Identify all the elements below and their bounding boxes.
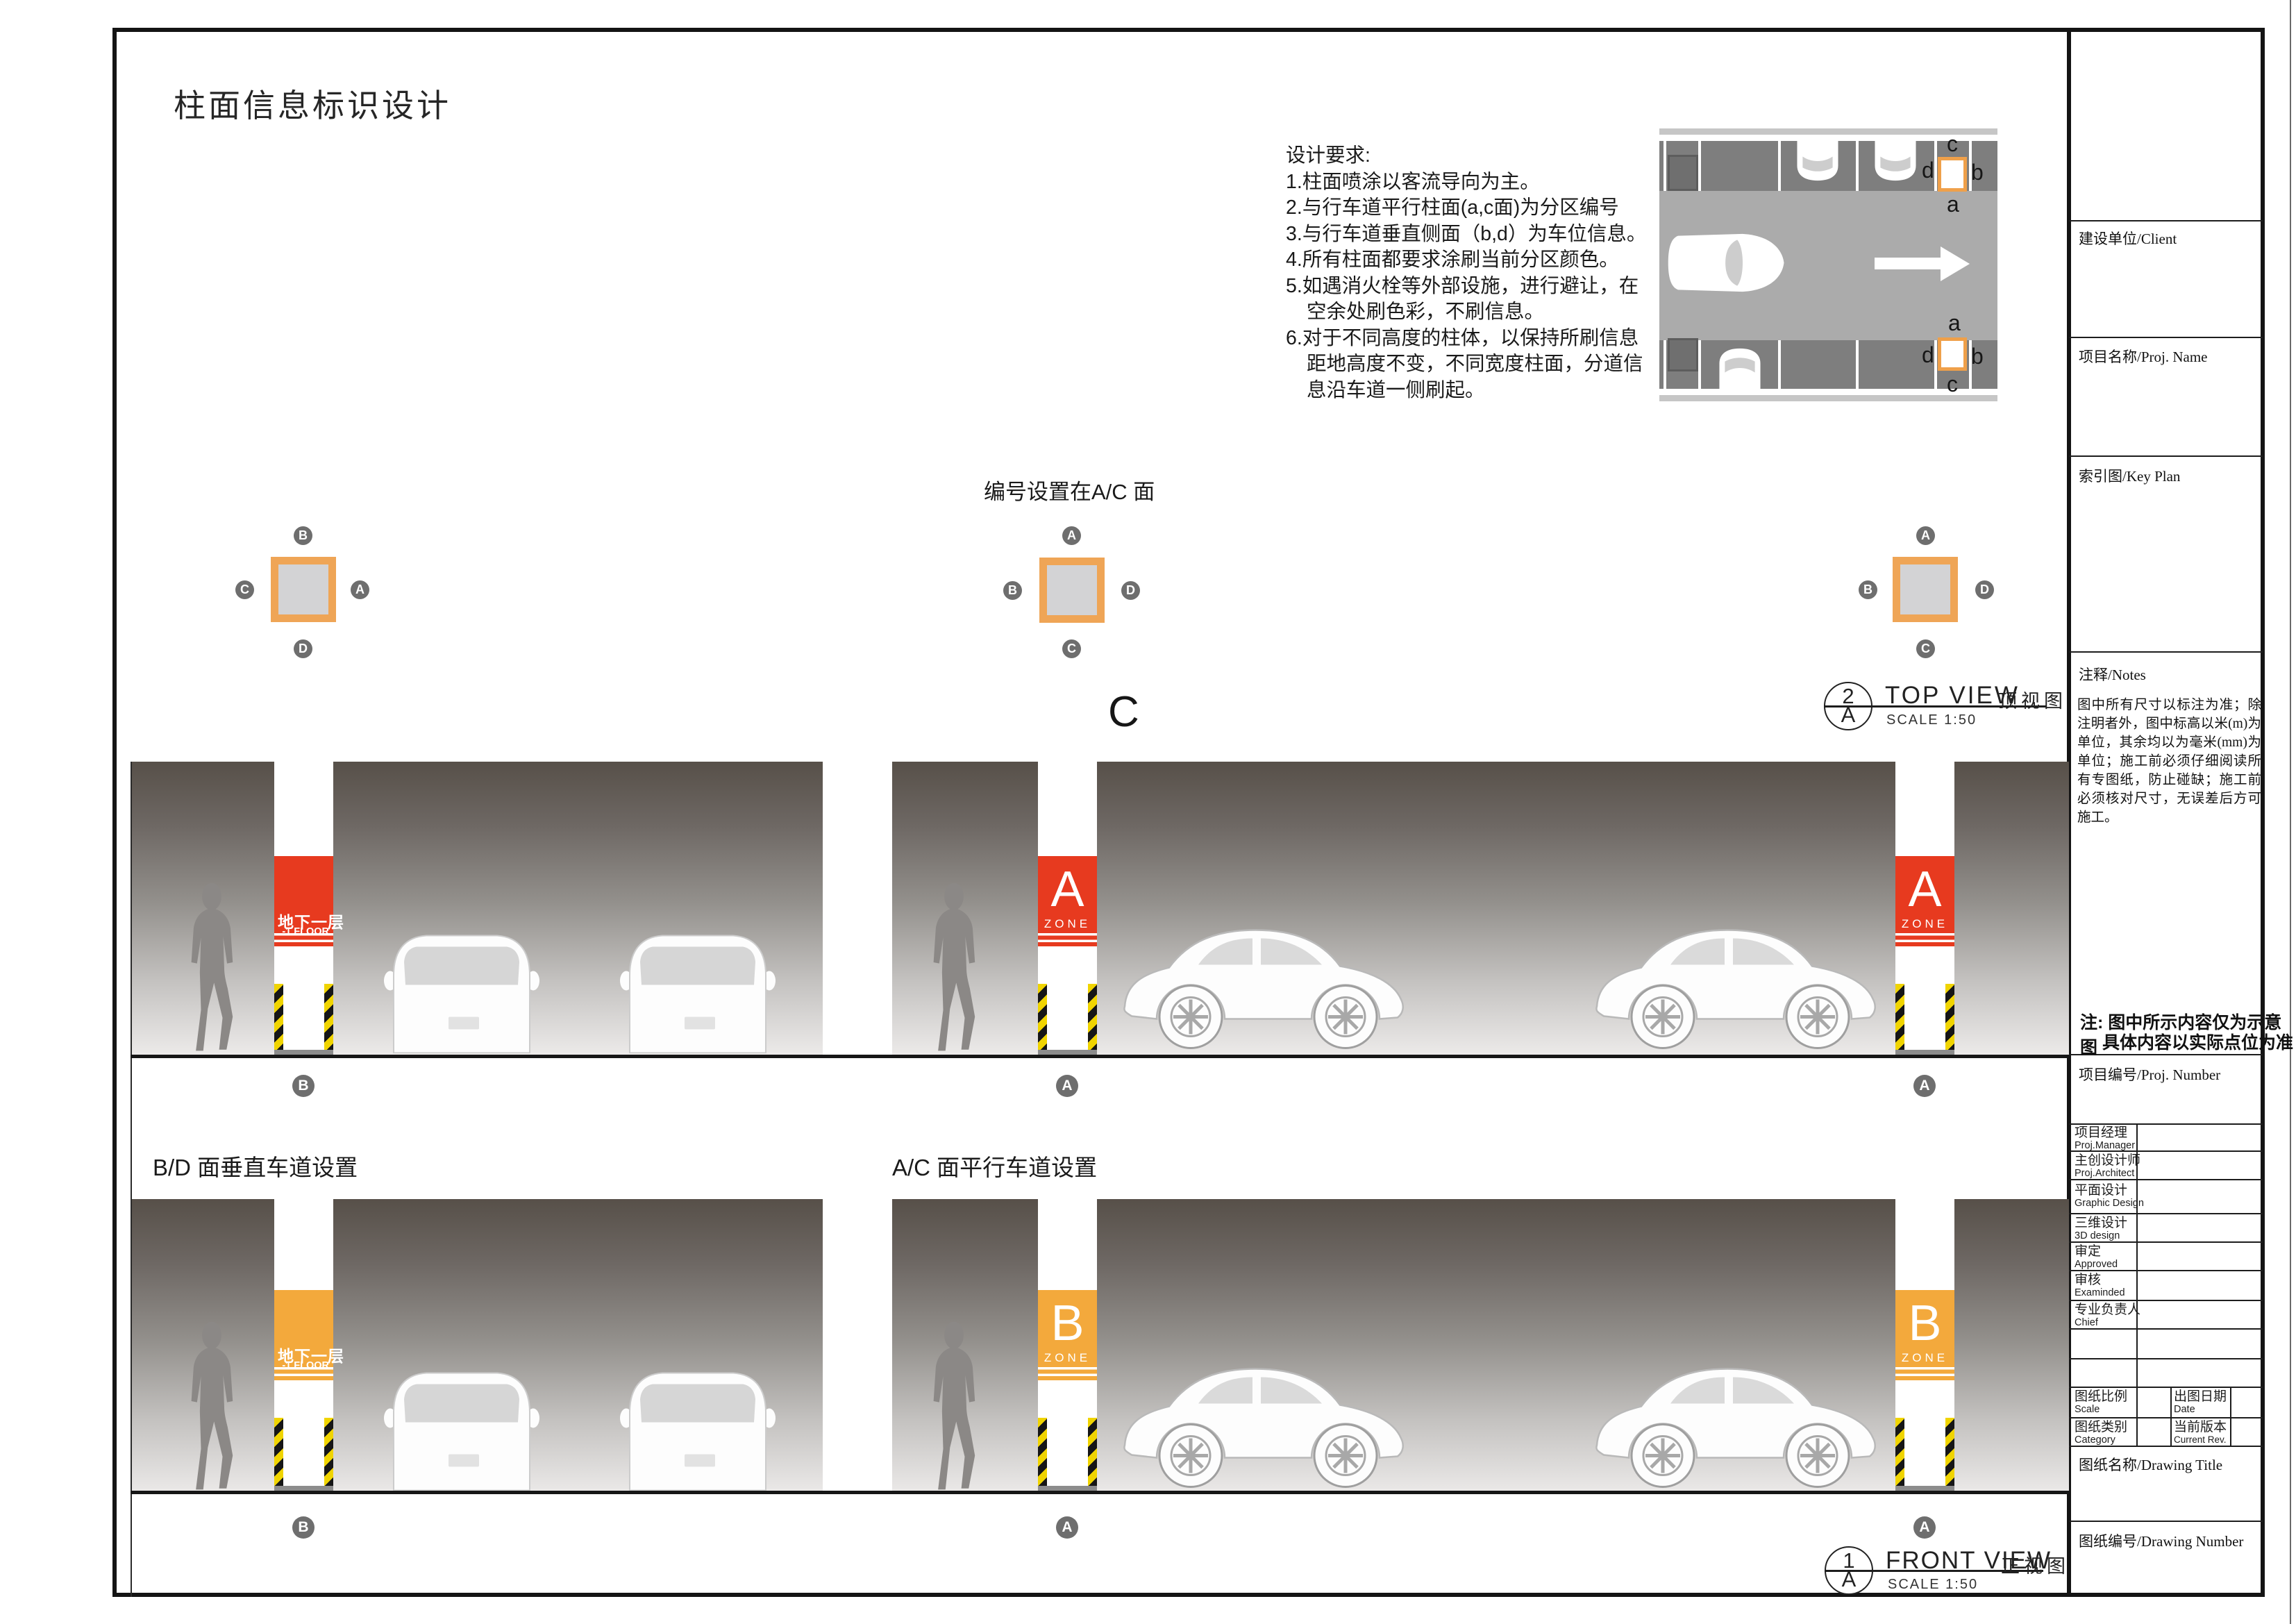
stall-line [1778, 141, 1781, 191]
parked-car-side-icon [1590, 1334, 1888, 1491]
face-badge: B [1003, 581, 1022, 600]
face-letter: a [1948, 312, 1961, 334]
role-cn: 审核 [2075, 1273, 2125, 1287]
design-requirements-title: 设计要求: [1286, 143, 1646, 169]
person-silhouette-icon [920, 1321, 988, 1491]
face-badge: B [292, 1075, 315, 1097]
design-requirement-line: 6.对于不同高度的柱体，以保持所刷信息 [1286, 326, 1646, 352]
face-badge: C [235, 580, 254, 599]
hazard-stripe [274, 984, 283, 1050]
face-badge: A [351, 580, 369, 599]
column: B ZONE [1895, 1199, 1954, 1494]
stall-line [1664, 340, 1666, 389]
category-en: Category [2075, 1434, 2127, 1446]
sign-stripes [1038, 933, 1097, 948]
face-badge: C [1062, 639, 1081, 658]
key-plan-label: 索引图/Key Plan [2079, 465, 2180, 486]
zone-letter: B [1038, 1298, 1097, 1348]
role-en: Approved [2075, 1259, 2118, 1270]
role-label: 平面设计 Graphic Design [2075, 1183, 2144, 1209]
date-en: Date [2174, 1404, 2227, 1415]
hazard-stripe [1945, 984, 1954, 1050]
face-letter: d [1922, 344, 1934, 366]
column-base [1038, 1486, 1097, 1491]
direction-arrow [1875, 258, 1941, 269]
role-cn: 三维设计 [2075, 1216, 2127, 1230]
drawing-sheet: 柱面信息标识设计 设计要求: 1.柱面喷涂以客流导向为主。 2.与行车道平行柱面… [0, 0, 2296, 1624]
table-divider [2170, 1387, 2172, 1446]
sign-stripes [274, 933, 333, 948]
stall-line [1856, 141, 1859, 191]
proj-name-label: 项目名称/Proj. Name [2079, 346, 2207, 367]
sidebar-divider [2069, 455, 2263, 457]
role-en: 3D design [2075, 1230, 2127, 1241]
stall-line [1698, 340, 1701, 389]
viewport-scale: SCALE 1:50 [1886, 712, 1977, 728]
parked-car-rear-icon [618, 1343, 778, 1491]
face-letter: c [1947, 133, 1958, 155]
face-badge: A [1916, 526, 1935, 545]
hazard-stripe [324, 984, 333, 1050]
zone-sign-a: A ZONE [1038, 856, 1097, 948]
scale-en: Scale [2075, 1404, 2127, 1415]
hazard-stripe [1038, 984, 1047, 1050]
face-letter: c [1947, 373, 1958, 395]
sidebar-divider [2069, 1417, 2263, 1418]
hazard-stripe [324, 1418, 333, 1486]
design-requirement-line: 距地高度不变，不同宽度柱面，分道信 [1286, 351, 1646, 378]
ac-elevation-label: A/C 面平行车道设置 [892, 1149, 1097, 1182]
parked-car-rear-icon [382, 905, 542, 1053]
column: 地下一层 -1 FLOOR [274, 762, 333, 1055]
bd-elevation-label: B/D 面垂直车道设置 [153, 1149, 358, 1182]
face-badge: B [294, 526, 312, 545]
numbering-heading: 编号设置在A/C 面 [984, 474, 1155, 505]
plan-column-highlight [1938, 337, 1967, 371]
column-section [1039, 558, 1105, 623]
column-base [274, 1050, 333, 1055]
hazard-stripe [1945, 1418, 1954, 1486]
design-requirements: 设计要求: 1.柱面喷涂以客流导向为主。 2.与行车道平行柱面(a,c面)为分区… [1286, 143, 1646, 403]
sidebar-divider [2069, 1213, 2263, 1214]
stall-line [1934, 340, 1937, 389]
zone-word: ZONE [1038, 917, 1097, 931]
parked-car-side-icon [1118, 896, 1416, 1052]
column: A ZONE [1038, 762, 1097, 1055]
design-requirement-line: 3.与行车道垂直侧面（b,d）为车位信息。 [1286, 221, 1646, 248]
role-cn: 审定 [2075, 1244, 2118, 1259]
floor-sign-orange: 地下一层 -1 FLOOR [274, 1290, 333, 1382]
person-silhouette-icon [178, 1321, 246, 1491]
elevation-ac-b-zone: B ZONE B ZONE [892, 1199, 2069, 1494]
stall-line [1698, 141, 1701, 191]
role-en: Examinded [2075, 1287, 2125, 1298]
role-cn: 专业负责人 [2075, 1303, 2140, 1317]
parked-car-rear-icon [618, 905, 778, 1053]
zone-letter: A [1038, 864, 1097, 914]
column: A ZONE [1895, 762, 1954, 1055]
stall-line [1778, 340, 1781, 389]
hazard-stripe [1088, 1418, 1097, 1486]
zone-sign-b: B ZONE [1038, 1290, 1097, 1382]
elevation-bd-b-zone: 地下一层 -1 FLOOR [132, 1199, 823, 1494]
hazard-stripe [1895, 984, 1904, 1050]
sidebar-divider [2069, 1241, 2263, 1243]
zone-word: ZONE [1895, 1351, 1954, 1365]
sign-stripes [1038, 1367, 1097, 1382]
sidebar-divider [2069, 651, 2263, 653]
column-base [1895, 1050, 1954, 1055]
drawing-number-label: 图纸编号/Drawing Number [2079, 1530, 2243, 1551]
zone-letter: A [1895, 864, 1954, 914]
parked-car-top-icon [1793, 140, 1843, 183]
design-requirement-line: 1.柱面喷涂以客流导向为主。 [1286, 169, 1646, 196]
column-base [1895, 1486, 1954, 1491]
face-badge: D [294, 639, 312, 658]
page-title: 柱面信息标识设计 [174, 81, 451, 126]
plan-column-highlight [1938, 157, 1967, 192]
zone-sign-a: A ZONE [1895, 856, 1954, 948]
elevation-bd-a-zone: 地下一层 -1 FLOOR [132, 762, 823, 1055]
column: 地下一层 -1 FLOOR [274, 1199, 333, 1494]
plan-column-dark [1668, 155, 1698, 191]
face-badge: B [1859, 580, 1877, 599]
role-en: Chief [2075, 1317, 2140, 1328]
zone-word: ZONE [1895, 917, 1954, 931]
role-en: Proj.Manager [2075, 1140, 2135, 1151]
design-requirement-line: 5.如遇消火栓等外部设施，进行避让，在 [1286, 274, 1646, 300]
sidebar-divider [2069, 1179, 2263, 1180]
face-badge: A [1062, 526, 1081, 545]
parked-car-top-icon [1715, 346, 1765, 390]
design-requirement-line: 4.所有柱面都要求涂刷当前分区颜色。 [1286, 247, 1646, 274]
role-en: Proj.Architect [2075, 1168, 2140, 1179]
rev-cn: 当前版本 [2174, 1420, 2227, 1434]
face-badge: A [1056, 1075, 1078, 1097]
parked-car-side-icon [1590, 896, 1888, 1052]
design-requirement-line: 空余处刷色彩，不刷信息。 [1286, 299, 1646, 326]
table-divider [2230, 1387, 2231, 1446]
face-badge: D [1121, 581, 1140, 600]
viewport-title-cn: 顶视图 [1998, 686, 2067, 713]
column-base [274, 1486, 333, 1491]
column: B ZONE [1038, 1199, 1097, 1494]
hazard-stripe [1038, 1418, 1047, 1486]
sidebar-divider [2069, 1387, 2263, 1388]
column-section [1893, 557, 1958, 622]
zone-word: ZONE [1038, 1351, 1097, 1365]
zone-sign-b: B ZONE [1895, 1290, 1954, 1382]
disclaimer-line2: 具体内容以实际点位为准 [2102, 1029, 2293, 1054]
sheet-edge-line [2290, 0, 2291, 1624]
stall-line [1856, 340, 1859, 389]
sidebar-divider [2069, 1123, 2263, 1125]
parking-plan-diagram: c d b a a d b c [1659, 128, 1997, 401]
role-label: 审定 Approved [2075, 1244, 2118, 1270]
notes-label: 注释/Notes [2079, 664, 2146, 685]
viewport-scale: SCALE 1:50 [1888, 1577, 1978, 1593]
client-label: 建设单位/Client [2079, 228, 2177, 249]
sidebar-divider [2069, 1446, 2263, 1447]
role-label: 主创设计师 Proj.Architect [2075, 1153, 2140, 1179]
sidebar-divider [2069, 337, 2263, 338]
face-letter: b [1971, 345, 1984, 367]
hazard-stripe [1895, 1418, 1904, 1486]
category-label: 图纸类别 Category [2075, 1420, 2127, 1446]
person-silhouette-icon [920, 882, 988, 1052]
face-badge: A [1913, 1075, 1936, 1097]
scale-cn: 图纸比例 [2075, 1389, 2127, 1404]
role-label: 三维设计 3D design [2075, 1216, 2127, 1241]
parked-car-rear-icon [382, 1343, 542, 1491]
face-badge: A [1913, 1516, 1936, 1539]
date-label: 出图日期 Date [2174, 1389, 2227, 1415]
sign-stripes [274, 1367, 333, 1382]
zone-letter: B [1895, 1298, 1954, 1348]
sidebar-divider [2069, 1270, 2263, 1271]
date-cn: 出图日期 [2174, 1389, 2227, 1404]
role-cn: 平面设计 [2075, 1183, 2144, 1198]
sidebar-divider [2069, 1328, 2263, 1330]
face-letter: b [1971, 161, 1984, 183]
face-letter: d [1922, 159, 1934, 181]
sidebar-divider [2069, 1300, 2263, 1301]
design-requirement-line: 息沿车道一侧刷起。 [1286, 378, 1646, 404]
rev-en: Current Rev. [2174, 1434, 2227, 1446]
parked-car-side-icon [1118, 1334, 1416, 1491]
viewport-title-cn: 正视图 [2001, 1551, 2070, 1578]
sign-stripes [1895, 1367, 1954, 1382]
face-badge: D [1975, 580, 1994, 599]
role-cn: 项目经理 [2075, 1125, 2135, 1140]
proj-number-label: 项目编号/Proj. Number [2079, 1064, 2220, 1085]
scale-label: 图纸比例 Scale [2075, 1389, 2127, 1415]
category-cn: 图纸类别 [2075, 1420, 2127, 1434]
role-label: 项目经理 Proj.Manager [2075, 1125, 2135, 1151]
role-en: Graphic Design [2075, 1198, 2144, 1209]
design-requirement-line: 2.与行车道平行柱面(a,c面)为分区编号 [1286, 195, 1646, 221]
hazard-stripe [1088, 984, 1097, 1050]
column-section [271, 557, 336, 622]
stall-line [1664, 141, 1666, 191]
face-badge: C [1916, 639, 1935, 658]
hazard-stripe [274, 1418, 283, 1486]
sidebar-divider [2069, 1521, 2263, 1522]
sign-stripes [1895, 933, 1954, 948]
drawing-title-label: 图纸名称/Drawing Title [2079, 1454, 2222, 1475]
driving-car-icon [1665, 229, 1790, 296]
role-cn: 主创设计师 [2075, 1153, 2140, 1168]
big-letter: C [1108, 687, 1139, 737]
role-label: 专业负责人 Chief [2075, 1303, 2140, 1328]
ground-line [131, 1055, 2069, 1058]
direction-arrow-head [1941, 246, 1970, 281]
plan-column-dark [1668, 338, 1698, 371]
face-badge: A [1056, 1516, 1078, 1539]
column-base [1038, 1050, 1097, 1055]
face-letter: a [1947, 193, 1959, 215]
notes-text: 图中所有尺寸以标注为准；除注明者外，图中标高以米(m)为单位，其余均以为毫米(m… [2077, 696, 2261, 827]
rev-label: 当前版本 Current Rev. [2174, 1420, 2227, 1446]
face-badge: B [292, 1516, 315, 1539]
role-label: 审核 Examinded [2075, 1273, 2125, 1298]
sidebar-divider [2069, 1358, 2263, 1359]
person-silhouette-icon [178, 882, 246, 1052]
stall-line [1934, 141, 1937, 191]
sidebar-divider [2069, 220, 2263, 221]
elevation-ac-a-zone: A ZONE A ZONE [892, 762, 2069, 1055]
floor-sign-red: 地下一层 -1 FLOOR [274, 856, 333, 948]
parked-car-top-icon [1870, 140, 1920, 183]
ground-line [131, 1491, 2069, 1494]
